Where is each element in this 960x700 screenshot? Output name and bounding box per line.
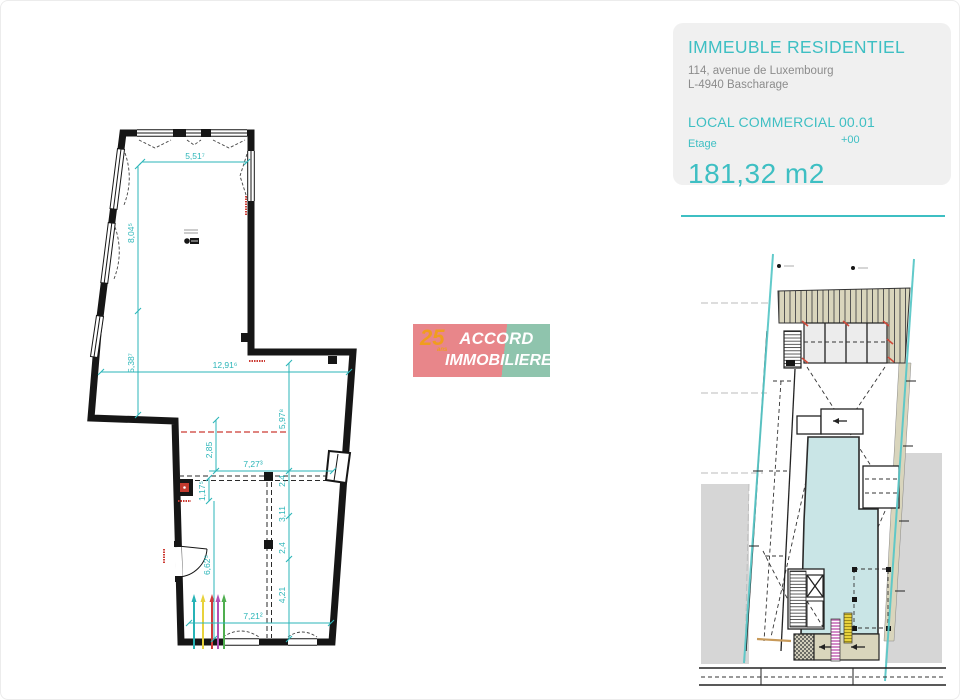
dim-center-small: 2,85 <box>204 441 214 458</box>
dim-left-small: 1,17⁵ <box>197 481 207 501</box>
main-floor-plan: 5,51⁷ 8,04⁵ 5,38⁷ 12,91⁶ 5,97⁸ 2,85 7,27… <box>71 111 391 671</box>
dim-right-upper: 5,97⁸ <box>277 409 287 430</box>
floor-value: +00 <box>841 134 860 146</box>
dim-inner-width: 7,27³ <box>243 459 263 469</box>
street <box>699 668 946 685</box>
address-line-1: 114, avenue de Luxembourg <box>688 64 951 78</box>
dim-right-small-2: 2,4 <box>277 542 287 554</box>
dim-mid-width: 12,91⁶ <box>213 360 238 370</box>
address-line-2: L-4940 Bascharage <box>688 78 951 92</box>
wall-fixture-1 <box>241 333 250 342</box>
site-key-plan <box>694 249 948 699</box>
site-stair-left <box>784 331 801 368</box>
dim-left-lower: 5,38⁷ <box>126 353 136 373</box>
dim-top-width: 5,51⁷ <box>185 151 205 161</box>
dim-right-mid: 3,11 <box>277 506 287 522</box>
stair-elevator-core <box>788 569 824 629</box>
mid-structures <box>797 409 863 434</box>
dim-bottom-width: 7,21² <box>243 611 263 621</box>
teal-divider <box>681 215 945 217</box>
dim-left-room-height: 6,62⁵ <box>202 555 212 575</box>
parking-grid <box>802 321 894 363</box>
parcel-boundary-left <box>744 254 773 663</box>
plan-sheet: 5,51⁷ 8,04⁵ 5,38⁷ 12,91⁶ 5,97⁸ 2,85 7,27… <box>0 0 960 700</box>
building-title: IMMEUBLE RESIDENTIEL <box>688 37 951 58</box>
property-info-panel: IMMEUBLE RESIDENTIEL 114, avenue de Luxe… <box>673 23 951 185</box>
logo-line1: ACCORD <box>445 329 548 350</box>
logo-line2: IMMOBILIERE <box>445 350 548 371</box>
logo-text: ACCORD IMMOBILIERE <box>445 329 548 371</box>
shaft-room-right <box>863 466 899 508</box>
floor-row: Etage +00 <box>688 134 928 152</box>
floor-plan-outline <box>91 133 353 642</box>
neighbor-building-left <box>701 484 749 664</box>
electrical-box <box>176 479 193 496</box>
floor-label: Etage <box>688 138 717 150</box>
agency-logo: 25 ans ACCORD IMMOBILIERE <box>413 324 550 377</box>
wall-niche <box>326 451 350 483</box>
dim-right-lower: 4,21 <box>277 586 287 603</box>
dim-right-small-1: 2,4 <box>277 475 287 487</box>
wall-fixture-2 <box>328 356 337 364</box>
unit-area: 181,32 m2 <box>688 158 951 190</box>
dim-left-upper: 8,04⁵ <box>126 223 136 243</box>
unit-label: LOCAL COMMERCIAL 00.01 <box>688 114 951 130</box>
